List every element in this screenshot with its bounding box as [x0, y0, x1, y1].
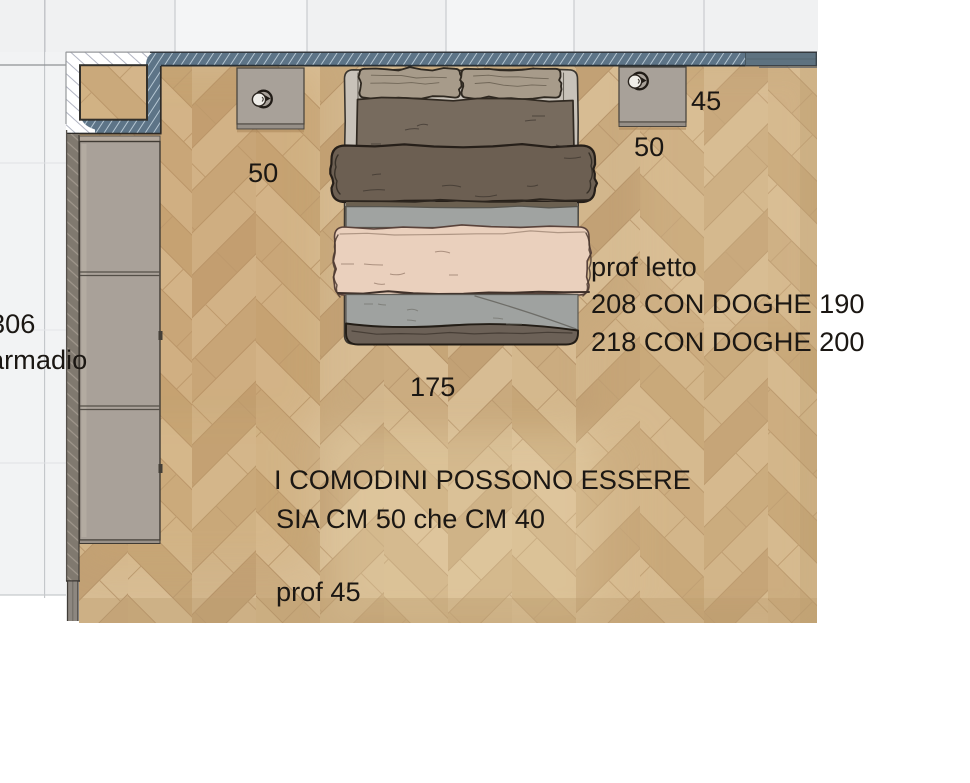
svg-text:I COMODINI POSSONO ESSERE: I COMODINI POSSONO ESSERE — [274, 464, 691, 495]
svg-text:218 CON DOGHE 200: 218 CON DOGHE 200 — [591, 326, 865, 357]
svg-text:175: 175 — [410, 371, 455, 402]
svg-text:50: 50 — [634, 131, 664, 162]
svg-text:armadio: armadio — [0, 344, 87, 375]
svg-text:45: 45 — [691, 85, 721, 116]
svg-text:prof 45: prof 45 — [276, 576, 361, 607]
svg-text:50: 50 — [248, 157, 278, 188]
svg-text:306: 306 — [0, 308, 35, 339]
svg-text:SIA CM 50 che CM 40: SIA CM 50 che CM 40 — [276, 503, 545, 534]
svg-text:prof letto: prof letto — [591, 251, 697, 282]
svg-text:208 CON DOGHE 190: 208 CON DOGHE 190 — [591, 288, 865, 319]
